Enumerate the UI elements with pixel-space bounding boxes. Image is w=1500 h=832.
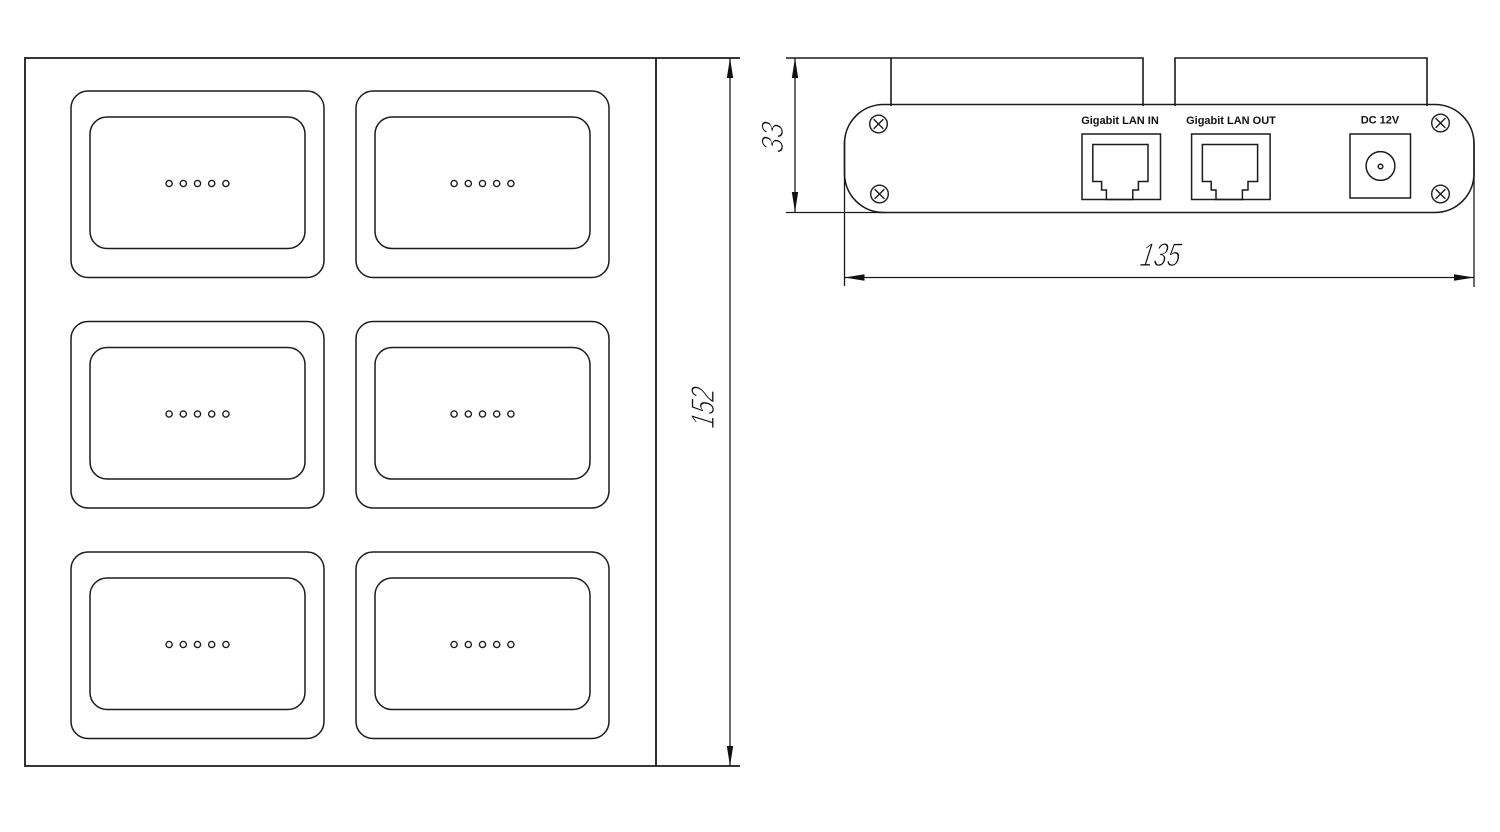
svg-text:DC 12V: DC 12V bbox=[1361, 115, 1400, 127]
svg-text:152: 152 bbox=[685, 384, 722, 430]
svg-text:Gigabit LAN IN: Gigabit LAN IN bbox=[1081, 115, 1159, 127]
svg-text:135: 135 bbox=[1138, 237, 1185, 274]
svg-text:Gigabit LAN OUT: Gigabit LAN OUT bbox=[1186, 115, 1276, 127]
